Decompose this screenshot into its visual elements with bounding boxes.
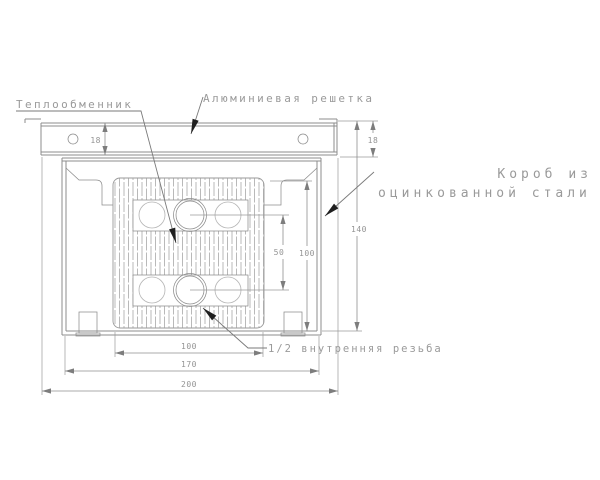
foot-right [281,312,305,336]
box-liner-left [66,168,113,205]
label-heat-exchanger: Теплообменник [16,98,133,111]
dim-grille-height-right: 18 [338,121,378,157]
dim-text-inner-depth: 100 [299,249,315,258]
foot-left [76,312,100,336]
convector-section-drawing: 18 18 140 100 50 100 170 200 [0,0,600,480]
dim-text-block-width: 100 [181,342,197,351]
grille-hole-right [298,134,308,144]
label-thread: 1/2 внутренняя резьба [268,343,443,355]
labels: Теплообменник Алюминиевая решетка Короб … [16,92,592,355]
technical-drawing-canvas: 18 18 140 100 50 100 170 200 [0,0,600,480]
heat-exchanger-block [113,178,289,328]
dim-text-grille-height-left: 18 [90,136,101,145]
label-steel-box-line2: оцинкованной стали [378,186,591,201]
dim-text-total-height: 140 [351,225,367,234]
grille-hole-left [68,134,78,144]
dim-pipe-spacing: 50 [274,215,285,290]
dim-text-grille-height-right: 18 [368,136,379,145]
leader-steel-box [325,172,374,216]
dim-text-pipe-spacing: 50 [274,248,285,257]
dim-grille-height-left: 18 [90,123,105,155]
dim-block-width: 100 [115,332,263,357]
label-steel-box-line1: Короб из [497,167,592,182]
label-aluminum-grille: Алюминиевая решетка [203,92,374,105]
aluminum-grille [25,119,337,155]
box-liner-right [264,168,317,205]
dim-text-box-width: 170 [181,360,197,369]
leader-aluminum-grille [191,97,203,134]
dim-text-total-width: 200 [181,380,197,389]
